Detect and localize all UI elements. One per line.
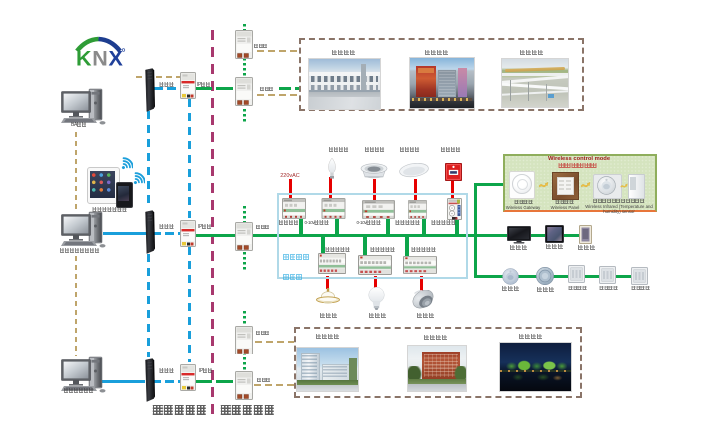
svg-text:KNX: KNX [76,47,124,71]
